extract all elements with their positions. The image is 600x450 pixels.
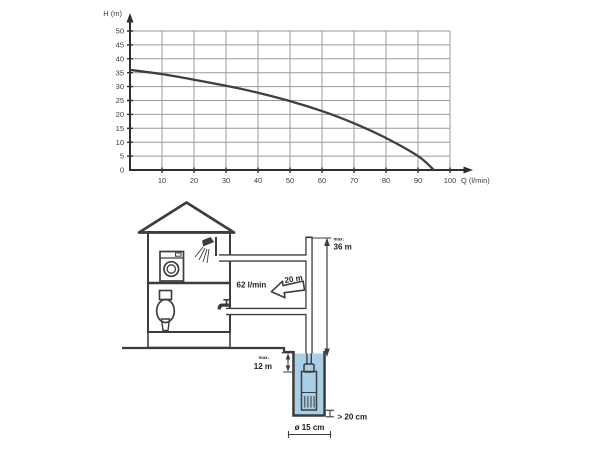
- pump-manual-page: 1020304050607080901000510152025303540455…: [0, 0, 600, 450]
- clearance-dim-lines: [326, 410, 334, 417]
- dim-arrow-up: [286, 353, 291, 359]
- pipe-length-label: 20 m: [284, 273, 303, 285]
- shower: [195, 236, 216, 263]
- dim-arrow-down: [286, 366, 291, 372]
- pipe-network: [219, 238, 309, 354]
- max-head-label: 36 m: [334, 243, 352, 252]
- washing-machine-door: [164, 262, 179, 277]
- toilet-pedestal: [162, 319, 170, 331]
- bottom-clearance-dimension: > 20 cm: [326, 410, 367, 421]
- washing-machine: [160, 252, 184, 282]
- well-water: [295, 354, 323, 415]
- well-diameter-dimension: ø 15 cm: [289, 423, 331, 438]
- installation-diagram: 62 l/min 20 m max. 36 m max. 12 m > 20 c…: [0, 0, 600, 450]
- dim-arrow-up: [324, 238, 330, 247]
- immersion-depth-label: 12 m: [254, 362, 272, 371]
- well-diameter-label: ø 15 cm: [295, 423, 325, 432]
- toilet: [157, 291, 175, 331]
- shower-head: [201, 236, 214, 246]
- ground-line: [122, 348, 293, 352]
- toilet-tank: [160, 291, 172, 300]
- immersion-prefix: max.: [259, 355, 269, 360]
- max-head-prefix: max.: [334, 237, 344, 242]
- roof: [139, 203, 234, 233]
- max-head-dimension: max. 36 m: [312, 237, 352, 358]
- bottom-clearance-label: > 20 cm: [338, 413, 368, 422]
- diameter-dim-lines: [289, 431, 331, 438]
- flow-rate-label: 62 l/min: [237, 281, 267, 290]
- washing-machine-door-glass: [167, 265, 175, 273]
- well: [294, 351, 325, 416]
- house: [139, 203, 234, 348]
- immersion-depth-dimension: max. 12 m: [254, 353, 294, 372]
- shower-spray: [195, 247, 209, 263]
- foundation: [148, 332, 230, 348]
- washing-machine-knob: [176, 253, 182, 256]
